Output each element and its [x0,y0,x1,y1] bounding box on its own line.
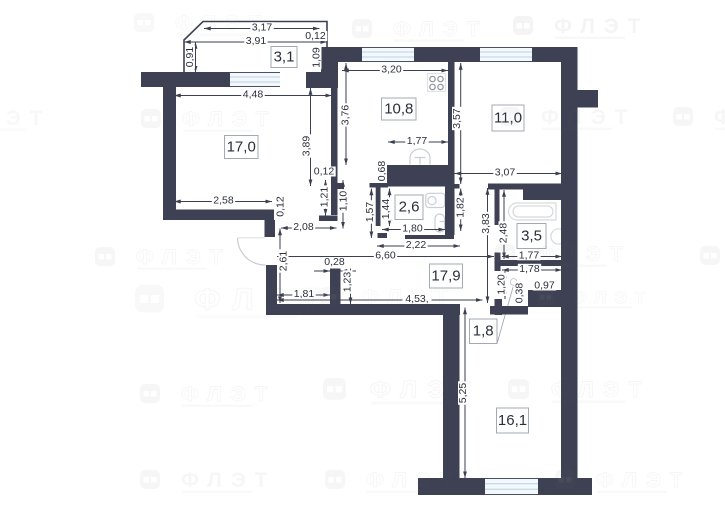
svg-text:ФЛЭТ: ФЛЭТ [714,106,725,129]
svg-text:1,09: 1,09 [311,47,323,68]
svg-text:1,10: 1,10 [338,191,350,212]
svg-text:ФЛЭТ: ФЛЭТ [175,12,271,35]
svg-text:2,61: 2,61 [278,251,290,272]
svg-text:1,57: 1,57 [364,202,376,223]
svg-text:3,57: 3,57 [451,108,463,129]
svg-text:6,60: 6,60 [375,249,396,261]
svg-text:3,07: 3,07 [495,166,516,178]
svg-text:3,83: 3,83 [480,213,492,234]
svg-text:1,23: 1,23 [342,272,354,293]
svg-text:10,8: 10,8 [384,101,413,118]
svg-text:ФЛЭТ: ФЛЭТ [366,469,462,492]
svg-text:1,82: 1,82 [455,197,467,218]
svg-text:1,44: 1,44 [380,199,392,220]
svg-text:2,08: 2,08 [293,221,314,233]
svg-text:ФЛЭТ: ФЛЭТ [554,15,650,38]
svg-text:17,0: 17,0 [227,139,256,156]
svg-text:2,6: 2,6 [399,199,420,216]
svg-text:0,68: 0,68 [376,161,388,182]
svg-text:0,28: 0,28 [324,256,345,268]
svg-text:ФЛЭТ: ФЛЭТ [361,286,457,309]
svg-text:3,1: 3,1 [274,49,295,66]
svg-text:3,20: 3,20 [381,63,402,75]
svg-text:0,12: 0,12 [275,196,287,217]
svg-text:1,8: 1,8 [473,323,494,340]
svg-text:ФЛЭТ: ФЛЭТ [541,106,637,129]
svg-text:1,21: 1,21 [319,187,331,208]
svg-text:17,9: 17,9 [431,268,460,285]
svg-text:ФЛЭТ: ФЛЭТ [551,377,651,402]
svg-text:3,91: 3,91 [246,35,267,47]
svg-text:1,77: 1,77 [407,135,428,147]
svg-text:1,80: 1,80 [402,222,423,234]
svg-text:ФЛЭТ: ФЛЭТ [136,246,232,269]
svg-text:2,58: 2,58 [213,194,234,206]
svg-text:0,12: 0,12 [314,166,335,178]
svg-text:2,22: 2,22 [406,239,427,251]
svg-text:0,38: 0,38 [514,283,526,304]
svg-text:3,76: 3,76 [340,105,352,126]
svg-text:3,89: 3,89 [301,136,313,157]
svg-text:0,91: 0,91 [184,47,196,68]
svg-text:16,1: 16,1 [498,412,527,429]
svg-text:ФЛЭТ: ФЛЭТ [181,383,277,406]
svg-text:1,20: 1,20 [496,274,508,295]
svg-text:ФЛЭТ: ФЛЭТ [370,377,480,404]
svg-text:ФЛЭТ: ФЛЭТ [393,18,489,41]
svg-text:3,5: 3,5 [521,228,542,245]
svg-text:ФЛЭТ: ФЛЭТ [572,287,653,307]
svg-text:ФЛЭТ: ФЛЭТ [181,469,277,492]
svg-text:ФЛЭТ: ФЛЭТ [194,283,333,317]
svg-text:ФЛЭТ: ФЛЭТ [536,243,632,266]
svg-text:4,48: 4,48 [243,88,264,100]
svg-text:ФЛЭТ: ФЛЭТ [0,107,52,130]
svg-text:ФЛЭТ: ФЛЭТ [182,108,278,131]
svg-text:0,12: 0,12 [305,30,326,42]
svg-text:2,48: 2,48 [498,223,510,244]
svg-text:ФЛЭТ: ФЛЭТ [596,469,692,492]
